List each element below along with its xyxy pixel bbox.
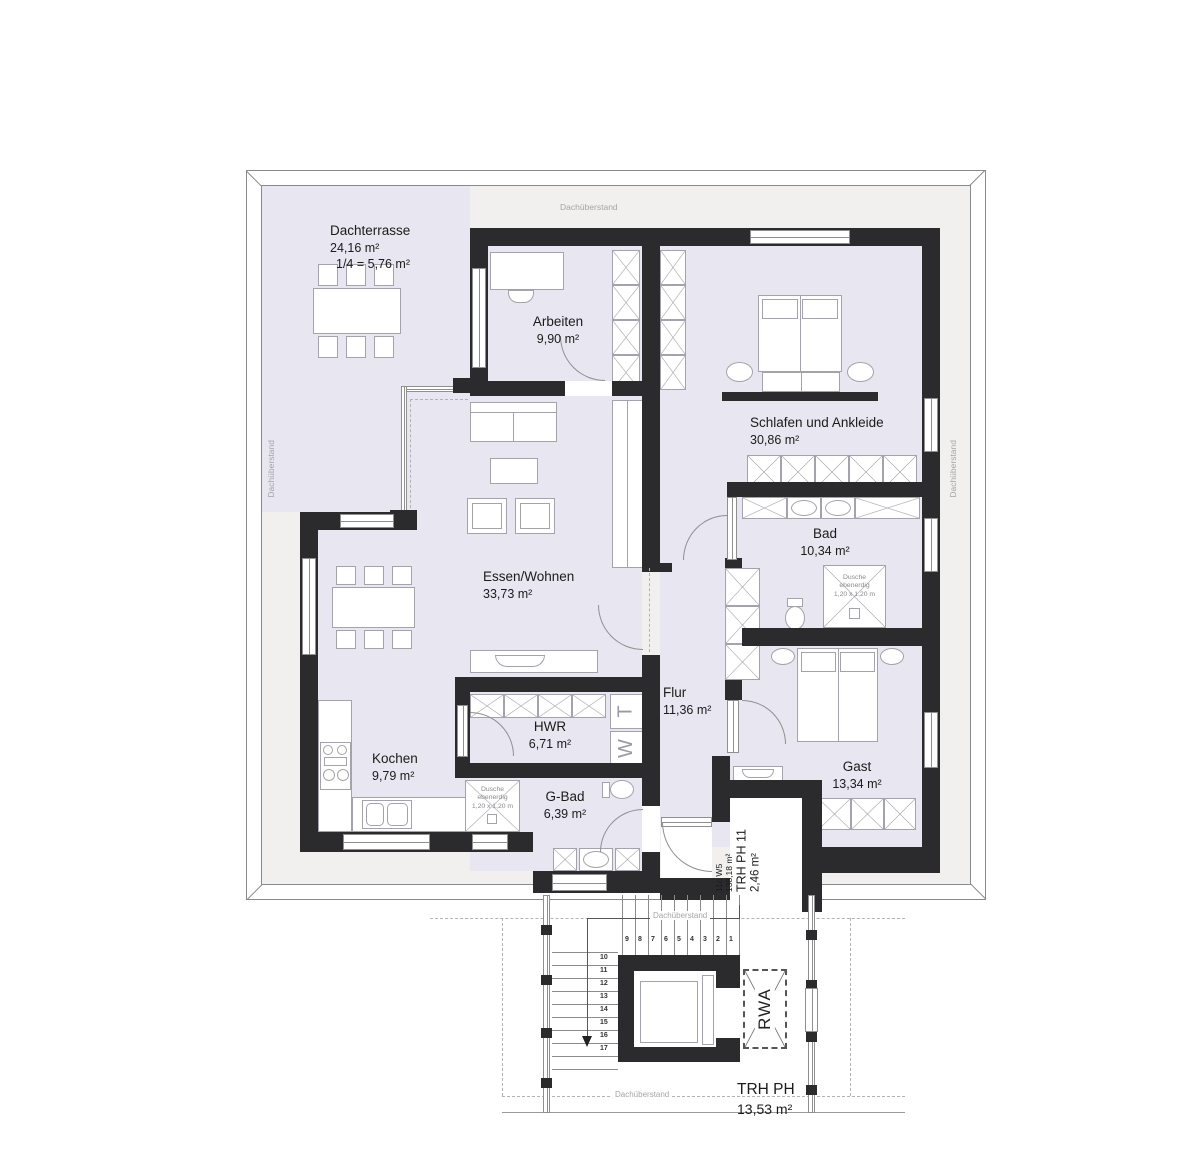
stove-grill <box>324 757 347 766</box>
unit-area: 138,18 m² <box>724 800 734 892</box>
terrace-chair <box>374 336 394 358</box>
door-opening-gbad <box>642 806 660 852</box>
window <box>552 874 607 891</box>
unit-info-block: 11c W5 138,18 m² TRH PH 11 2,46 m² <box>714 800 763 892</box>
room-name: Arbeiten <box>510 313 606 331</box>
room-label-dachterrasse: Dachterrasse 24,16 m² 1/4 = 5,76 m² <box>330 222 410 272</box>
walk-line <box>739 905 740 919</box>
overhang-label-right: Dachüberstand <box>948 440 958 498</box>
stair-core-name: TRH PH 11 <box>734 800 749 892</box>
pillow <box>762 299 798 319</box>
step-number: 9 <box>625 936 629 943</box>
dining-chair <box>336 630 356 649</box>
stair-riser <box>635 895 636 955</box>
door-opening-arbeiten <box>565 381 612 396</box>
terrace-chair <box>318 336 338 358</box>
room-name: HWR <box>505 718 595 736</box>
stairwell-name: TRH PH <box>737 1080 795 1100</box>
vanity-cell <box>855 497 920 519</box>
terrace-chair <box>346 336 366 358</box>
shower-note-gbad: Dusche ebenerdig 1,20 x 1,20 m <box>466 786 519 811</box>
stair-tread <box>552 965 618 966</box>
sink-basin <box>366 803 384 826</box>
stair-riser <box>713 895 714 955</box>
wall-segment <box>742 628 922 646</box>
window <box>924 712 938 768</box>
shower-drain <box>849 608 860 619</box>
room-note: 1/4 = 5,76 m² <box>330 256 410 272</box>
stair-core-area: 2,46 m² <box>749 800 763 892</box>
window <box>343 834 430 850</box>
overhang-label-stair-top: Dachüberstand <box>650 911 710 920</box>
overhang-label-top: Dachüberstand <box>560 202 618 212</box>
wall-segment <box>470 381 642 396</box>
window <box>924 518 938 572</box>
step-number: 11 <box>600 967 607 974</box>
window <box>750 230 850 244</box>
door-leaf-schlafen <box>727 497 737 560</box>
step-number: 3 <box>703 936 707 943</box>
step-number: 6 <box>664 936 668 943</box>
toilet-bowl <box>785 606 805 630</box>
sink-drainer <box>387 803 408 826</box>
wall-segment <box>470 228 940 246</box>
step-number: 10 <box>600 954 608 961</box>
shower-note-line: ebenerdig <box>477 794 507 801</box>
closet-cell <box>725 568 760 606</box>
room-area: 6,39 m² <box>520 806 610 822</box>
room-name: Essen/Wohnen <box>483 568 574 586</box>
vanity-cell <box>742 497 787 519</box>
room-label-bad: Bad 10,34 m² <box>780 525 870 559</box>
hwr-cabinet <box>572 694 606 718</box>
bed-divider <box>800 296 801 371</box>
rwa-label: RWA <box>755 986 775 1032</box>
step-number: 8 <box>638 936 642 943</box>
nightstand <box>847 362 874 382</box>
window <box>302 558 316 655</box>
room-area: 33,73 m² <box>483 586 574 602</box>
overhang-dash-terrace-v <box>410 399 411 508</box>
mullion <box>541 975 552 985</box>
coffee-table <box>490 458 538 484</box>
burner <box>337 745 347 755</box>
closet-cell <box>725 644 760 680</box>
wall-segment <box>712 780 822 798</box>
mullion <box>806 930 817 940</box>
room-label-essen: Essen/Wohnen 33,73 m² <box>483 568 574 602</box>
step-number: 13 <box>600 993 608 1000</box>
door-leaf-hwr <box>457 705 468 757</box>
stair-riser <box>661 895 662 955</box>
elevator-car <box>640 981 698 1043</box>
armchair-seat <box>472 503 502 529</box>
shower-note-line: ebenerdig <box>839 582 869 589</box>
desk <box>490 252 564 290</box>
dryer-unit: T <box>610 694 643 729</box>
stair-riser <box>622 895 623 955</box>
room-name: Kochen <box>372 750 418 768</box>
walk-arrow <box>582 1036 592 1047</box>
mullion <box>806 1085 817 1095</box>
stair-riser <box>648 895 649 955</box>
dresser-tray <box>742 769 774 778</box>
wardrobe-cell <box>612 320 640 355</box>
stair-tread <box>552 1030 618 1031</box>
wardrobe-cell <box>660 355 686 390</box>
hwr-cabinet <box>504 694 538 718</box>
room-label-gbad: G-Bad 6,39 m² <box>520 788 610 822</box>
stair-tread <box>552 991 618 992</box>
step-number: 12 <box>600 980 608 987</box>
room-label-hwr: HWR 6,71 m² <box>505 718 595 752</box>
overhang-label-stair-bottom: Dachüberstand <box>612 1090 672 1099</box>
wall-segment <box>727 482 922 497</box>
stairwell-area: 13,53 m² <box>737 1100 795 1118</box>
room-area: 24,16 m² <box>330 240 410 256</box>
sofa-cushion-line <box>513 413 514 441</box>
stair-riser <box>700 895 701 955</box>
room-label-flur: Flur 11,36 m² <box>663 684 711 718</box>
burner <box>323 745 333 755</box>
stairwell-bottom-line <box>502 1112 905 1113</box>
step-number: 17 <box>600 1045 608 1052</box>
pillow <box>840 652 875 672</box>
armchair-seat <box>520 503 550 529</box>
room-area: 10,34 m² <box>780 543 870 559</box>
mullion <box>541 1028 552 1038</box>
wall-segment <box>455 677 660 692</box>
wall-segment <box>642 563 672 572</box>
stair-riser <box>726 895 727 955</box>
room-label-schlafen: Schlafen und Ankleide 30,86 m² <box>750 414 884 448</box>
shower-note-line: 1,20 x 1,20 m <box>834 591 875 598</box>
window <box>340 514 394 528</box>
room-area: 6,71 m² <box>505 736 595 752</box>
burner <box>323 769 335 781</box>
stair-tread <box>552 1004 618 1005</box>
opening-dashline <box>649 568 650 652</box>
room-area: 13,34 m² <box>812 776 902 792</box>
bench-divider <box>801 373 802 391</box>
shower-note-line: Dusche <box>481 786 504 793</box>
dining-chair <box>392 630 412 649</box>
mullion <box>541 1078 552 1088</box>
lowboard-tray <box>495 655 545 667</box>
floor-plan: T W <box>0 0 1200 1166</box>
room-name: Flur <box>663 684 711 702</box>
stair-tread <box>552 1069 618 1070</box>
step-number: 2 <box>716 936 720 943</box>
stair-tread <box>552 978 618 979</box>
sideboard-line <box>627 401 628 567</box>
wall-segment <box>642 246 660 396</box>
toilet-bowl <box>610 780 634 799</box>
stair-tread <box>552 952 618 953</box>
room-label-kochen: Kochen 9,79 m² <box>372 750 418 784</box>
room-area: 30,86 m² <box>750 432 884 448</box>
step-number: 15 <box>600 1019 608 1026</box>
step-number: 4 <box>690 936 694 943</box>
vanity-sink <box>791 500 817 516</box>
wardrobe-cell <box>612 250 640 285</box>
terrace-table <box>313 288 401 334</box>
window <box>924 398 938 452</box>
rwa-label-wrap: RWA <box>743 969 787 1049</box>
nightstand <box>771 648 795 665</box>
shower-note-line: Dusche <box>843 574 866 581</box>
stairwell-window <box>805 988 818 1032</box>
stair-tread <box>552 1056 618 1057</box>
elevator-opening <box>716 988 742 1038</box>
gbad-sink <box>583 851 609 868</box>
unit-code: 11c W5 <box>714 800 724 892</box>
step-number: 5 <box>677 936 681 943</box>
wardrobe-cell <box>818 798 851 830</box>
dining-chair <box>336 566 356 585</box>
dining-chair <box>392 566 412 585</box>
door-leaf-gast <box>727 700 739 753</box>
dining-chair <box>364 630 384 649</box>
shower-drain <box>487 814 497 824</box>
wardrobe-cell <box>660 320 686 355</box>
step-number: 1 <box>729 936 733 943</box>
bath-cabinet <box>553 848 577 871</box>
stair-riser <box>674 895 675 955</box>
wardrobe-cell <box>851 798 884 830</box>
shower-note-line: 1,20 x 1,20 m <box>472 803 513 810</box>
burner <box>337 769 349 781</box>
stair-tread <box>552 1017 618 1018</box>
washer-unit: W <box>610 731 643 766</box>
elevator-door <box>702 975 714 1045</box>
room-label-gast: Gast 13,34 m² <box>812 758 902 792</box>
wall-segment <box>390 510 417 530</box>
mullion <box>806 980 817 988</box>
room-area: 9,79 m² <box>372 768 418 784</box>
walk-line <box>587 918 588 1038</box>
overhang-dash-terrace-h <box>410 399 468 400</box>
terrace-door <box>472 268 486 368</box>
wardrobe-cell <box>660 250 686 285</box>
dining-table <box>332 587 415 628</box>
overhang-dash <box>502 918 503 1096</box>
wardrobe-cell <box>612 285 640 320</box>
vanity-sink <box>825 500 851 516</box>
washer-label: W <box>615 739 638 758</box>
wardrobe-cell <box>660 285 686 320</box>
stair-riser <box>739 895 740 955</box>
room-label-arbeiten: Arbeiten 9,90 m² <box>510 313 606 347</box>
room-name: Gast <box>812 758 902 776</box>
stairwell-label: TRH PH 13,53 m² <box>737 1080 795 1118</box>
room-name: Bad <box>780 525 870 543</box>
window <box>472 834 508 850</box>
wall-segment <box>642 396 660 563</box>
dryer-label: T <box>615 705 638 717</box>
mullion <box>541 925 552 935</box>
hwr-cabinet <box>538 694 572 718</box>
wall-segment <box>455 763 660 778</box>
overhang-label-left: Dachüberstand <box>266 440 276 498</box>
step-number: 16 <box>600 1032 608 1039</box>
nightstand <box>880 648 904 665</box>
room-name: Dachterrasse <box>330 222 410 240</box>
step-number: 7 <box>651 936 655 943</box>
wardrobe-cell <box>884 798 916 830</box>
wall-headboard <box>722 392 878 401</box>
wall-segment <box>802 847 940 873</box>
step-number: 14 <box>600 1006 608 1013</box>
stair-riser <box>687 895 688 955</box>
room-area: 11,36 m² <box>663 702 711 718</box>
wall-segment <box>725 680 742 700</box>
pillow <box>802 299 838 319</box>
bed-divider <box>838 649 839 741</box>
room-name: Schlafen und Ankleide <box>750 414 884 432</box>
shower-note-bad: Dusche ebenerdig 1,20 x 1,20 m <box>824 574 885 599</box>
pillow <box>801 652 836 672</box>
overhang-dash <box>850 918 851 1096</box>
mullion <box>806 1032 817 1042</box>
dining-chair <box>364 566 384 585</box>
glass-corner-v <box>401 386 407 512</box>
nightstand <box>726 362 753 382</box>
overhang-dash <box>502 1096 905 1097</box>
room-name: G-Bad <box>520 788 610 806</box>
room-area: 9,90 m² <box>510 331 606 347</box>
